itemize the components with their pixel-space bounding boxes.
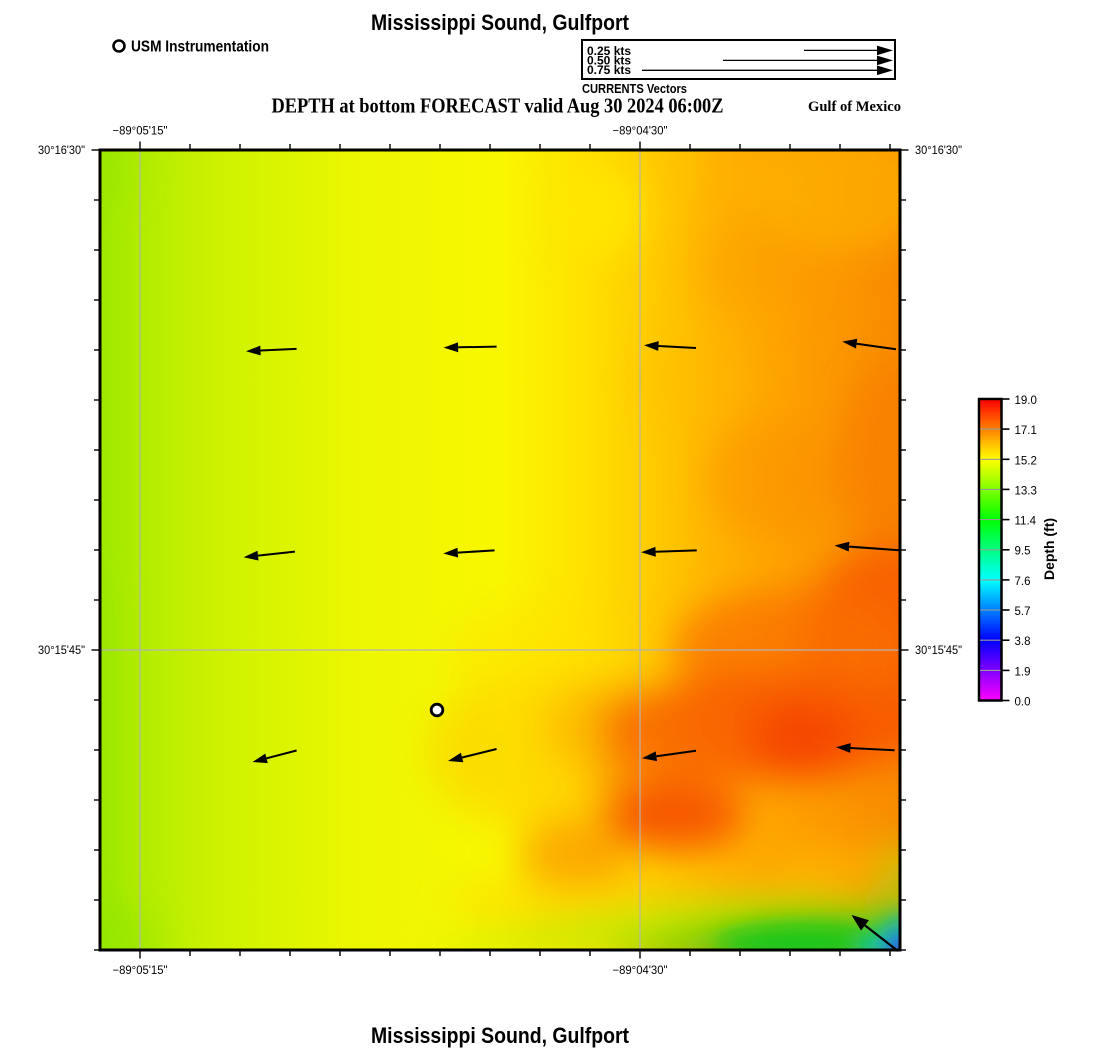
svg-text:30°15'45": 30°15'45" (915, 645, 962, 657)
svg-text:DEPTH at bottom FORECAST valid: DEPTH at bottom FORECAST valid Aug 30 20… (272, 94, 724, 118)
svg-text:11.4: 11.4 (1015, 516, 1037, 528)
svg-text:30°16'30": 30°16'30" (38, 145, 85, 157)
svg-text:19.0: 19.0 (1015, 395, 1037, 407)
svg-text:Mississippi Sound, Gulfport: Mississippi Sound, Gulfport (371, 1023, 630, 1048)
svg-text:−89°05'15": −89°05'15" (113, 965, 168, 977)
svg-text:−89°04'30": −89°04'30" (613, 965, 668, 977)
svg-text:Mississippi Sound, Gulfport: Mississippi Sound, Gulfport (371, 10, 630, 35)
svg-text:7.6: 7.6 (1015, 576, 1031, 588)
svg-text:17.1: 17.1 (1015, 425, 1037, 437)
svg-text:0.75 kts: 0.75 kts (587, 63, 631, 77)
svg-text:−89°04'30": −89°04'30" (613, 126, 668, 138)
svg-text:9.5: 9.5 (1015, 546, 1031, 558)
svg-text:15.2: 15.2 (1015, 455, 1037, 467)
svg-text:3.8: 3.8 (1015, 636, 1031, 648)
svg-text:−89°05'15": −89°05'15" (113, 126, 168, 138)
svg-text:5.7: 5.7 (1015, 606, 1031, 618)
svg-text:30°16'30": 30°16'30" (915, 145, 962, 157)
svg-text:13.3: 13.3 (1015, 486, 1037, 498)
svg-text:Gulf of Mexico: Gulf of Mexico (808, 99, 901, 115)
svg-text:0.0: 0.0 (1015, 697, 1031, 709)
svg-text:30°15'45": 30°15'45" (38, 645, 85, 657)
svg-text:USM Instrumentation: USM Instrumentation (131, 39, 269, 56)
svg-text:Depth (ft): Depth (ft) (1041, 518, 1057, 580)
svg-text:1.9: 1.9 (1015, 666, 1031, 678)
